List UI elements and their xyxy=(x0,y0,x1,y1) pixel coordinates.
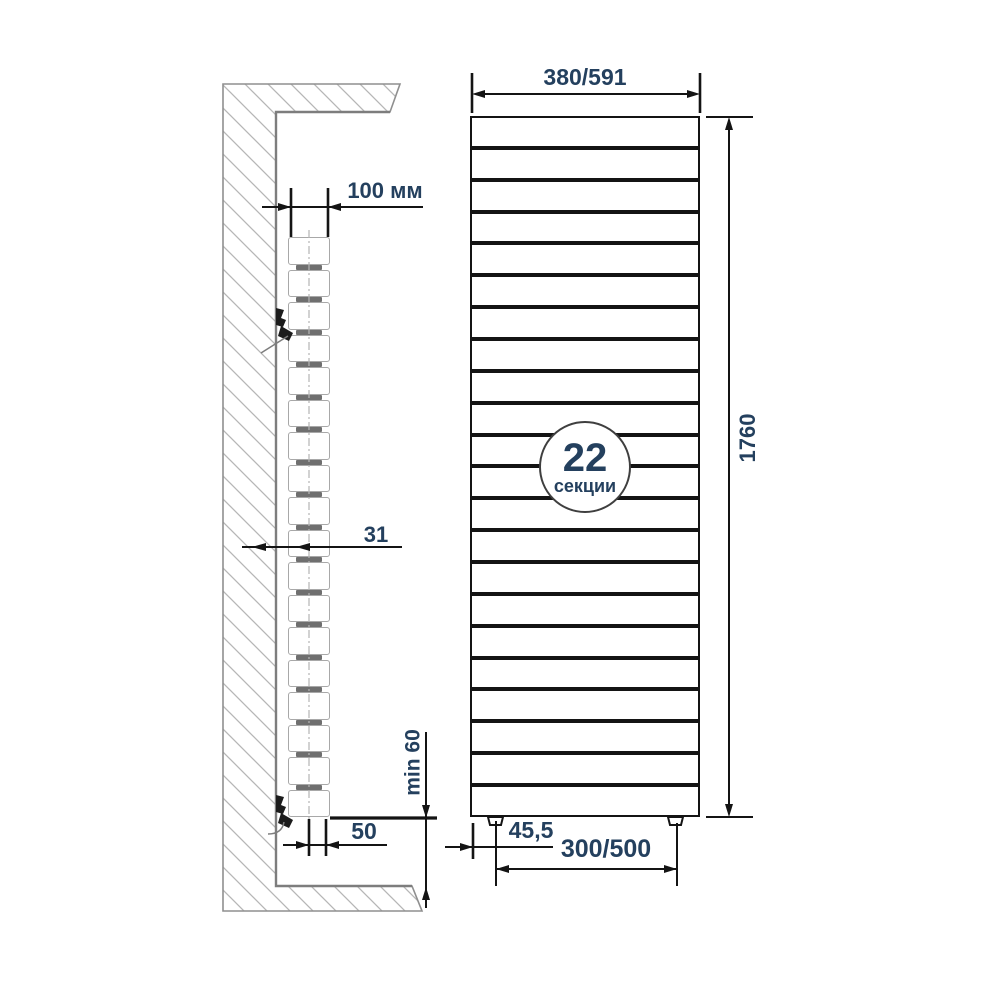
radiator-diagram: 22 секции 380/591 1760 100 мм 31 min 60 … xyxy=(0,0,1000,1000)
label-depth: 31 xyxy=(354,524,398,546)
label-height: 1760 xyxy=(737,398,759,478)
label-wall-clearance: 100 мм xyxy=(330,180,440,202)
label-bottom-offset: 50 xyxy=(342,820,386,843)
label-width: 380/591 xyxy=(495,66,675,89)
label-feet-spacing: 300/500 xyxy=(545,837,667,862)
labels-layer: 380/591 1760 100 мм 31 min 60 50 45,5 30… xyxy=(0,0,1000,1000)
label-floor-clearance: min 60 xyxy=(403,722,424,804)
